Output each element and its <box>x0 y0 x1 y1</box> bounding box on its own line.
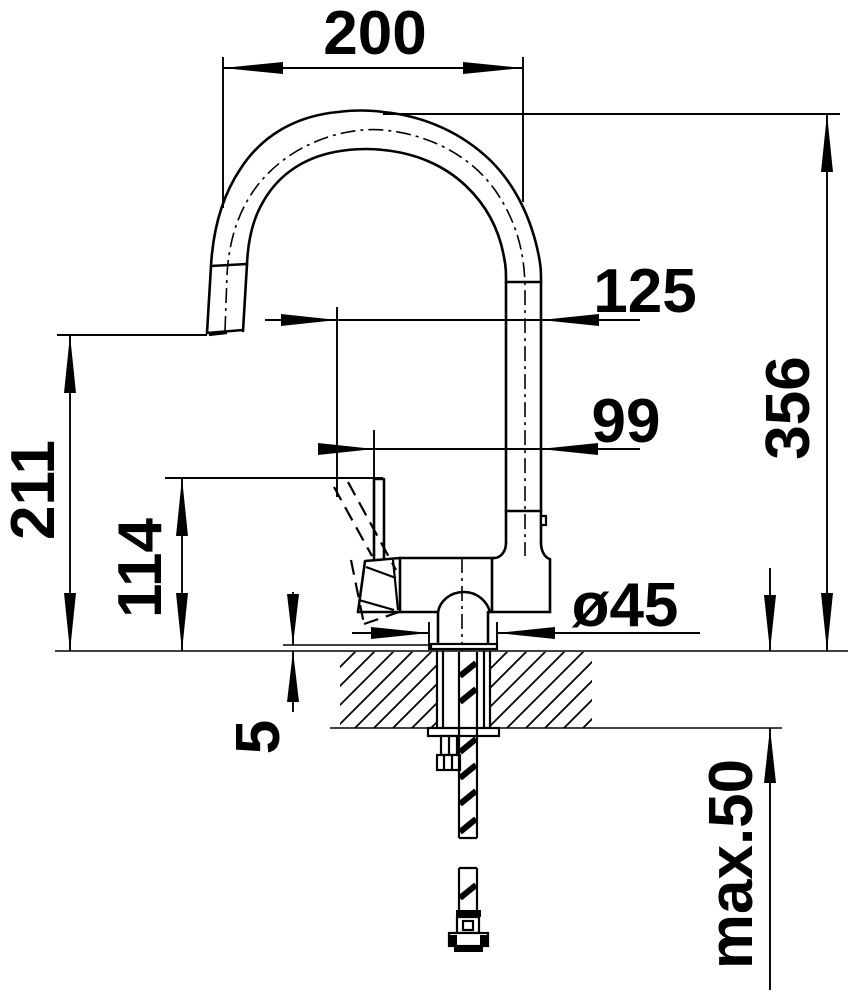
dimension-211-outlet-height: 211 <box>0 335 207 651</box>
threaded-shank <box>437 651 490 728</box>
dim-label-125: 125 <box>593 257 696 326</box>
mounting-plate <box>428 728 499 736</box>
dim-label-5: 5 <box>224 720 293 754</box>
base-flange <box>431 644 497 649</box>
pipe-fillet-left <box>494 543 506 558</box>
countertop-hatch-left <box>340 652 437 728</box>
dimension-114-lever-height: 114 <box>106 478 383 651</box>
dim-label-114: 114 <box>106 517 175 618</box>
faucet-dimension-drawing: 200 356 125 99 211 114 <box>0 0 848 1000</box>
pullout-head-joint <box>211 264 247 266</box>
dimension-125-outlet-offset: 125 <box>265 257 697 497</box>
dim-label-211: 211 <box>0 440 68 540</box>
dim-label-356: 356 <box>754 356 823 459</box>
dimension-5-base-gap: 5 <box>224 592 299 754</box>
dim-label-200: 200 <box>323 0 426 68</box>
dimension-200-spout-reach: 200 <box>223 0 523 208</box>
mounting-bolt <box>437 736 460 770</box>
dim-label-99: 99 <box>592 387 661 456</box>
dim-label-max50: max.50 <box>697 759 766 969</box>
pipe-clip <box>541 516 546 525</box>
dim-label-diameter-45: ø45 <box>572 571 679 640</box>
dimension-45-base-diameter: ø45 <box>352 571 700 650</box>
hose-end-connector <box>449 910 488 952</box>
base-and-countertop <box>55 644 848 770</box>
mounting-nut <box>437 755 460 770</box>
lever-handle <box>334 479 400 624</box>
pipe-fillet-right <box>541 543 550 612</box>
countertop-hatch-right <box>490 652 592 728</box>
dimension-max50-deck-thickness: max.50 <box>697 568 776 990</box>
pullout-hose <box>449 652 488 952</box>
dimension-99-lever-offset: 99 <box>318 387 660 478</box>
body-dome-profile <box>438 592 490 612</box>
spout-arc <box>207 111 546 557</box>
technical-drawing-svg: 200 356 125 99 211 114 <box>0 0 848 1000</box>
